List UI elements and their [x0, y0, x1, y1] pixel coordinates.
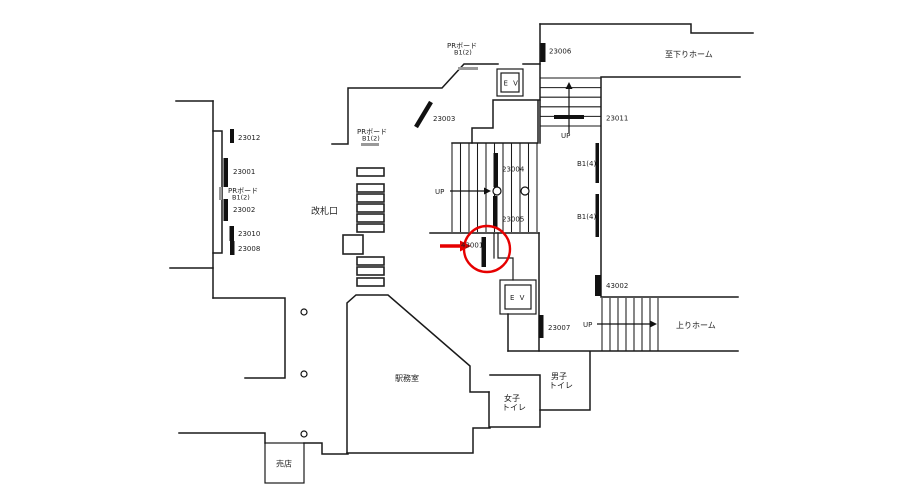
sign-bar-23010 [230, 226, 235, 241]
sign-label-23003: 23003 [433, 115, 455, 123]
elevator-top: E V [497, 69, 523, 96]
sign-label-b14-lower: B1(4) [577, 213, 596, 221]
sign-bar-23008 [230, 241, 235, 255]
womens-toilet-label-line1: 女子 [504, 393, 520, 403]
elevator-top-label: E V [504, 80, 520, 88]
up-label-bottom-stairs: UP [583, 321, 592, 329]
right-hall-walls [601, 77, 740, 297]
elevator-bottom-label: E V [510, 294, 526, 302]
station-office-bottom [347, 428, 490, 453]
sign-label-23008: 23008 [238, 245, 260, 253]
sign-bar-23012 [230, 129, 234, 143]
wall-below-central-stairs [494, 233, 513, 280]
gate-machine [357, 224, 384, 232]
gate-machine [357, 194, 384, 202]
gate-machine [357, 257, 384, 265]
mens-toilet-label-line1: 男子 [551, 372, 567, 381]
sign-label-b14-upper: B1(4) [577, 160, 596, 168]
pr-board-left-line2: B1(2) [232, 194, 250, 202]
wall-bottom-left [179, 433, 265, 443]
sign-label-23004: 23004 [502, 166, 525, 174]
sign-bar-23001 [224, 158, 229, 187]
sign-label-43001: 43001 [461, 242, 483, 250]
sign-bar-23005 [493, 196, 498, 228]
floor-plan-page: E V E V 23012 2 [0, 0, 919, 491]
pillar [493, 187, 501, 195]
pillar [301, 431, 307, 437]
up-label-central-stairs: UP [435, 188, 444, 196]
up-arrow-central-stairs [450, 188, 491, 195]
sign-bar-23006 [541, 43, 546, 62]
gate-machine [357, 267, 384, 275]
sign-label-23005: 23005 [502, 216, 524, 224]
wall-kiosk-right-step [304, 443, 348, 454]
sign-label-43002: 43002 [606, 282, 628, 290]
pr-board-left-mark [219, 187, 222, 200]
sign-bar-23003 [416, 102, 431, 127]
pillar [521, 187, 529, 195]
sign-bar-23002 [224, 199, 229, 221]
elevator-bottom: E V [500, 280, 536, 314]
wall-left-lower-block [213, 298, 285, 378]
pillar [301, 371, 307, 377]
ev-bottom-side-walls [508, 233, 539, 351]
up-arrow-top-stairs [566, 82, 573, 133]
sign-label-23012: 23012 [238, 134, 260, 142]
ticket-gate-machines [343, 168, 384, 286]
gate-machine [357, 214, 384, 222]
sign-bar-23007 [539, 315, 544, 338]
sign-label-23007: 23007 [548, 324, 570, 332]
pr-board-mid-line2: B1(2) [362, 135, 380, 143]
gate-booth [343, 235, 363, 254]
sign-bar-23004 [494, 153, 499, 187]
station-office-label: 駅務室 [395, 373, 419, 383]
up-platform-label: 上りホーム [676, 321, 716, 330]
up-label-top-stairs: UP [561, 132, 570, 140]
sign-label-23002: 23002 [233, 206, 255, 214]
gate-machine [357, 278, 384, 286]
mens-toilet-label-line2: トイレ [549, 381, 573, 390]
ticket-gate-label: 改札口 [311, 205, 338, 217]
gate-machine [357, 168, 384, 176]
sign-label-23006: 23006 [549, 48, 572, 56]
pr-board-mid-mark [361, 143, 379, 146]
sign-label-23001: 23001 [233, 168, 255, 176]
to-down-platform-label: 至下りホーム [665, 50, 713, 59]
womens-toilet-label-line2: トイレ [502, 403, 526, 412]
sign-label-23011: 23011 [606, 115, 628, 123]
sign-bar-43002 [595, 275, 601, 296]
pr-board-top-mark [458, 67, 478, 70]
gate-machine [357, 184, 384, 192]
ev-top-block-walls [472, 100, 540, 143]
up-arrow-bottom-stairs [597, 321, 657, 328]
floor-plan-svg: E V E V 23012 2 [0, 0, 919, 491]
pillar [301, 309, 307, 315]
sign-label-23010: 23010 [238, 230, 260, 238]
pr-board-top-line2: B1(2) [454, 49, 472, 57]
kiosk-label: 売店 [276, 459, 292, 469]
gate-machine [357, 204, 384, 212]
upper-platform-strip [540, 24, 753, 33]
